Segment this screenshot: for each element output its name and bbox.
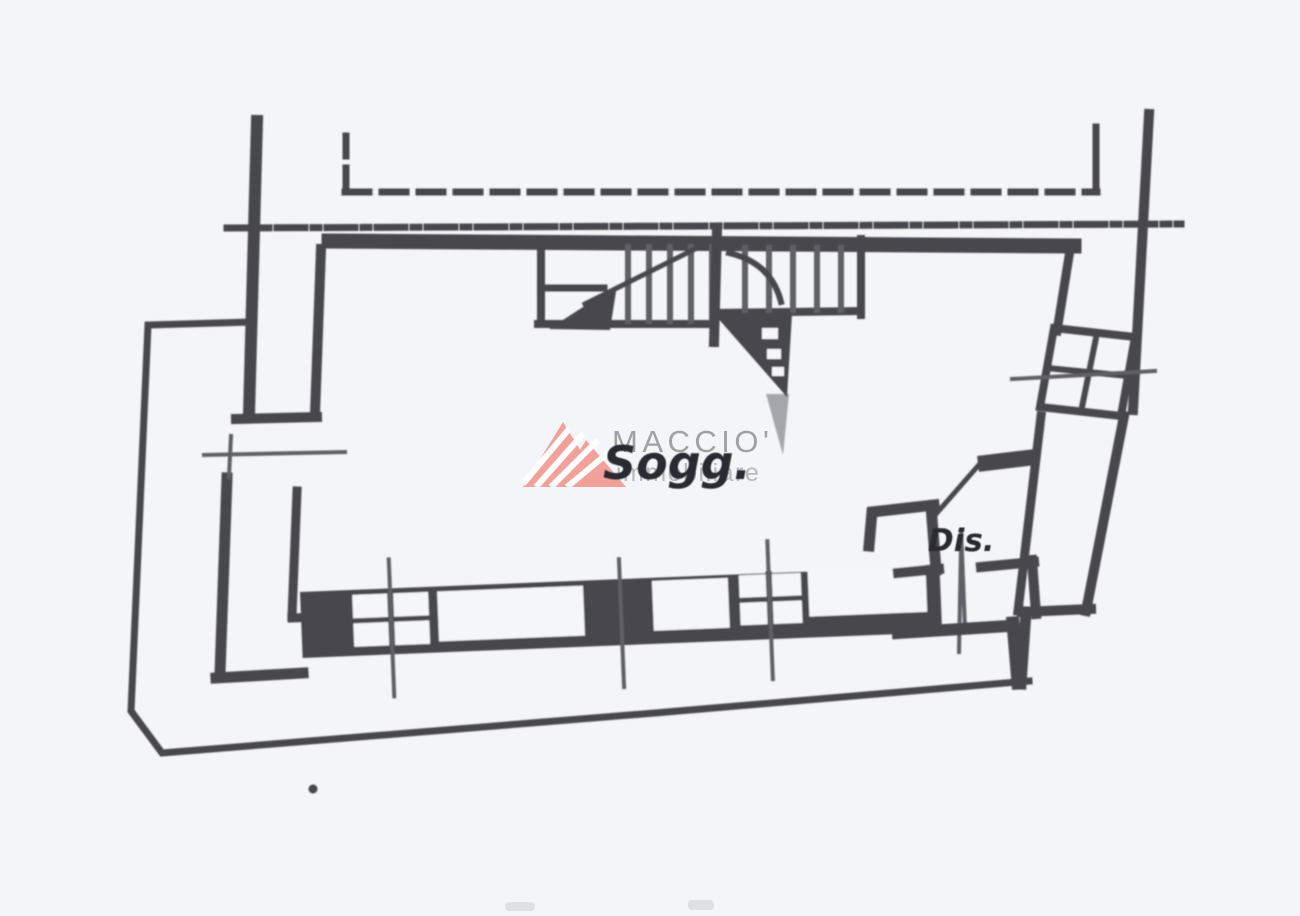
left-wall-window [204, 436, 345, 477]
scanned-floor-plan-page: MACCIO' immobiliare Sogg. Dis. [0, 0, 1300, 916]
room-label-disimpegno: Dis. [928, 523, 995, 559]
scan-smudge [688, 900, 714, 910]
window-bottom-3 [652, 578, 730, 631]
scan-dot [309, 785, 318, 794]
dis-door-leaf [936, 459, 984, 514]
terrace-outline [131, 322, 1029, 753]
dashed-projection-line [345, 127, 1097, 192]
room-label-soggiorno: Sogg. [603, 436, 751, 490]
floor-plan-drawing: MACCIO' immobiliare Sogg. Dis. [0, 0, 1300, 916]
dash-dot-section-line [227, 224, 1181, 228]
stair-arrow-head [549, 285, 617, 330]
dis-partition-walls [869, 458, 1091, 684]
dis-door-tick [959, 547, 961, 652]
stair-flight-left [538, 243, 712, 330]
scan-smudge [505, 902, 535, 911]
stair-direction-curve [729, 253, 781, 302]
staircase [538, 230, 861, 455]
bottom-wall-band [299, 531, 967, 699]
window-bottom-2 [437, 586, 585, 642]
stair-divider-wall [714, 230, 717, 342]
